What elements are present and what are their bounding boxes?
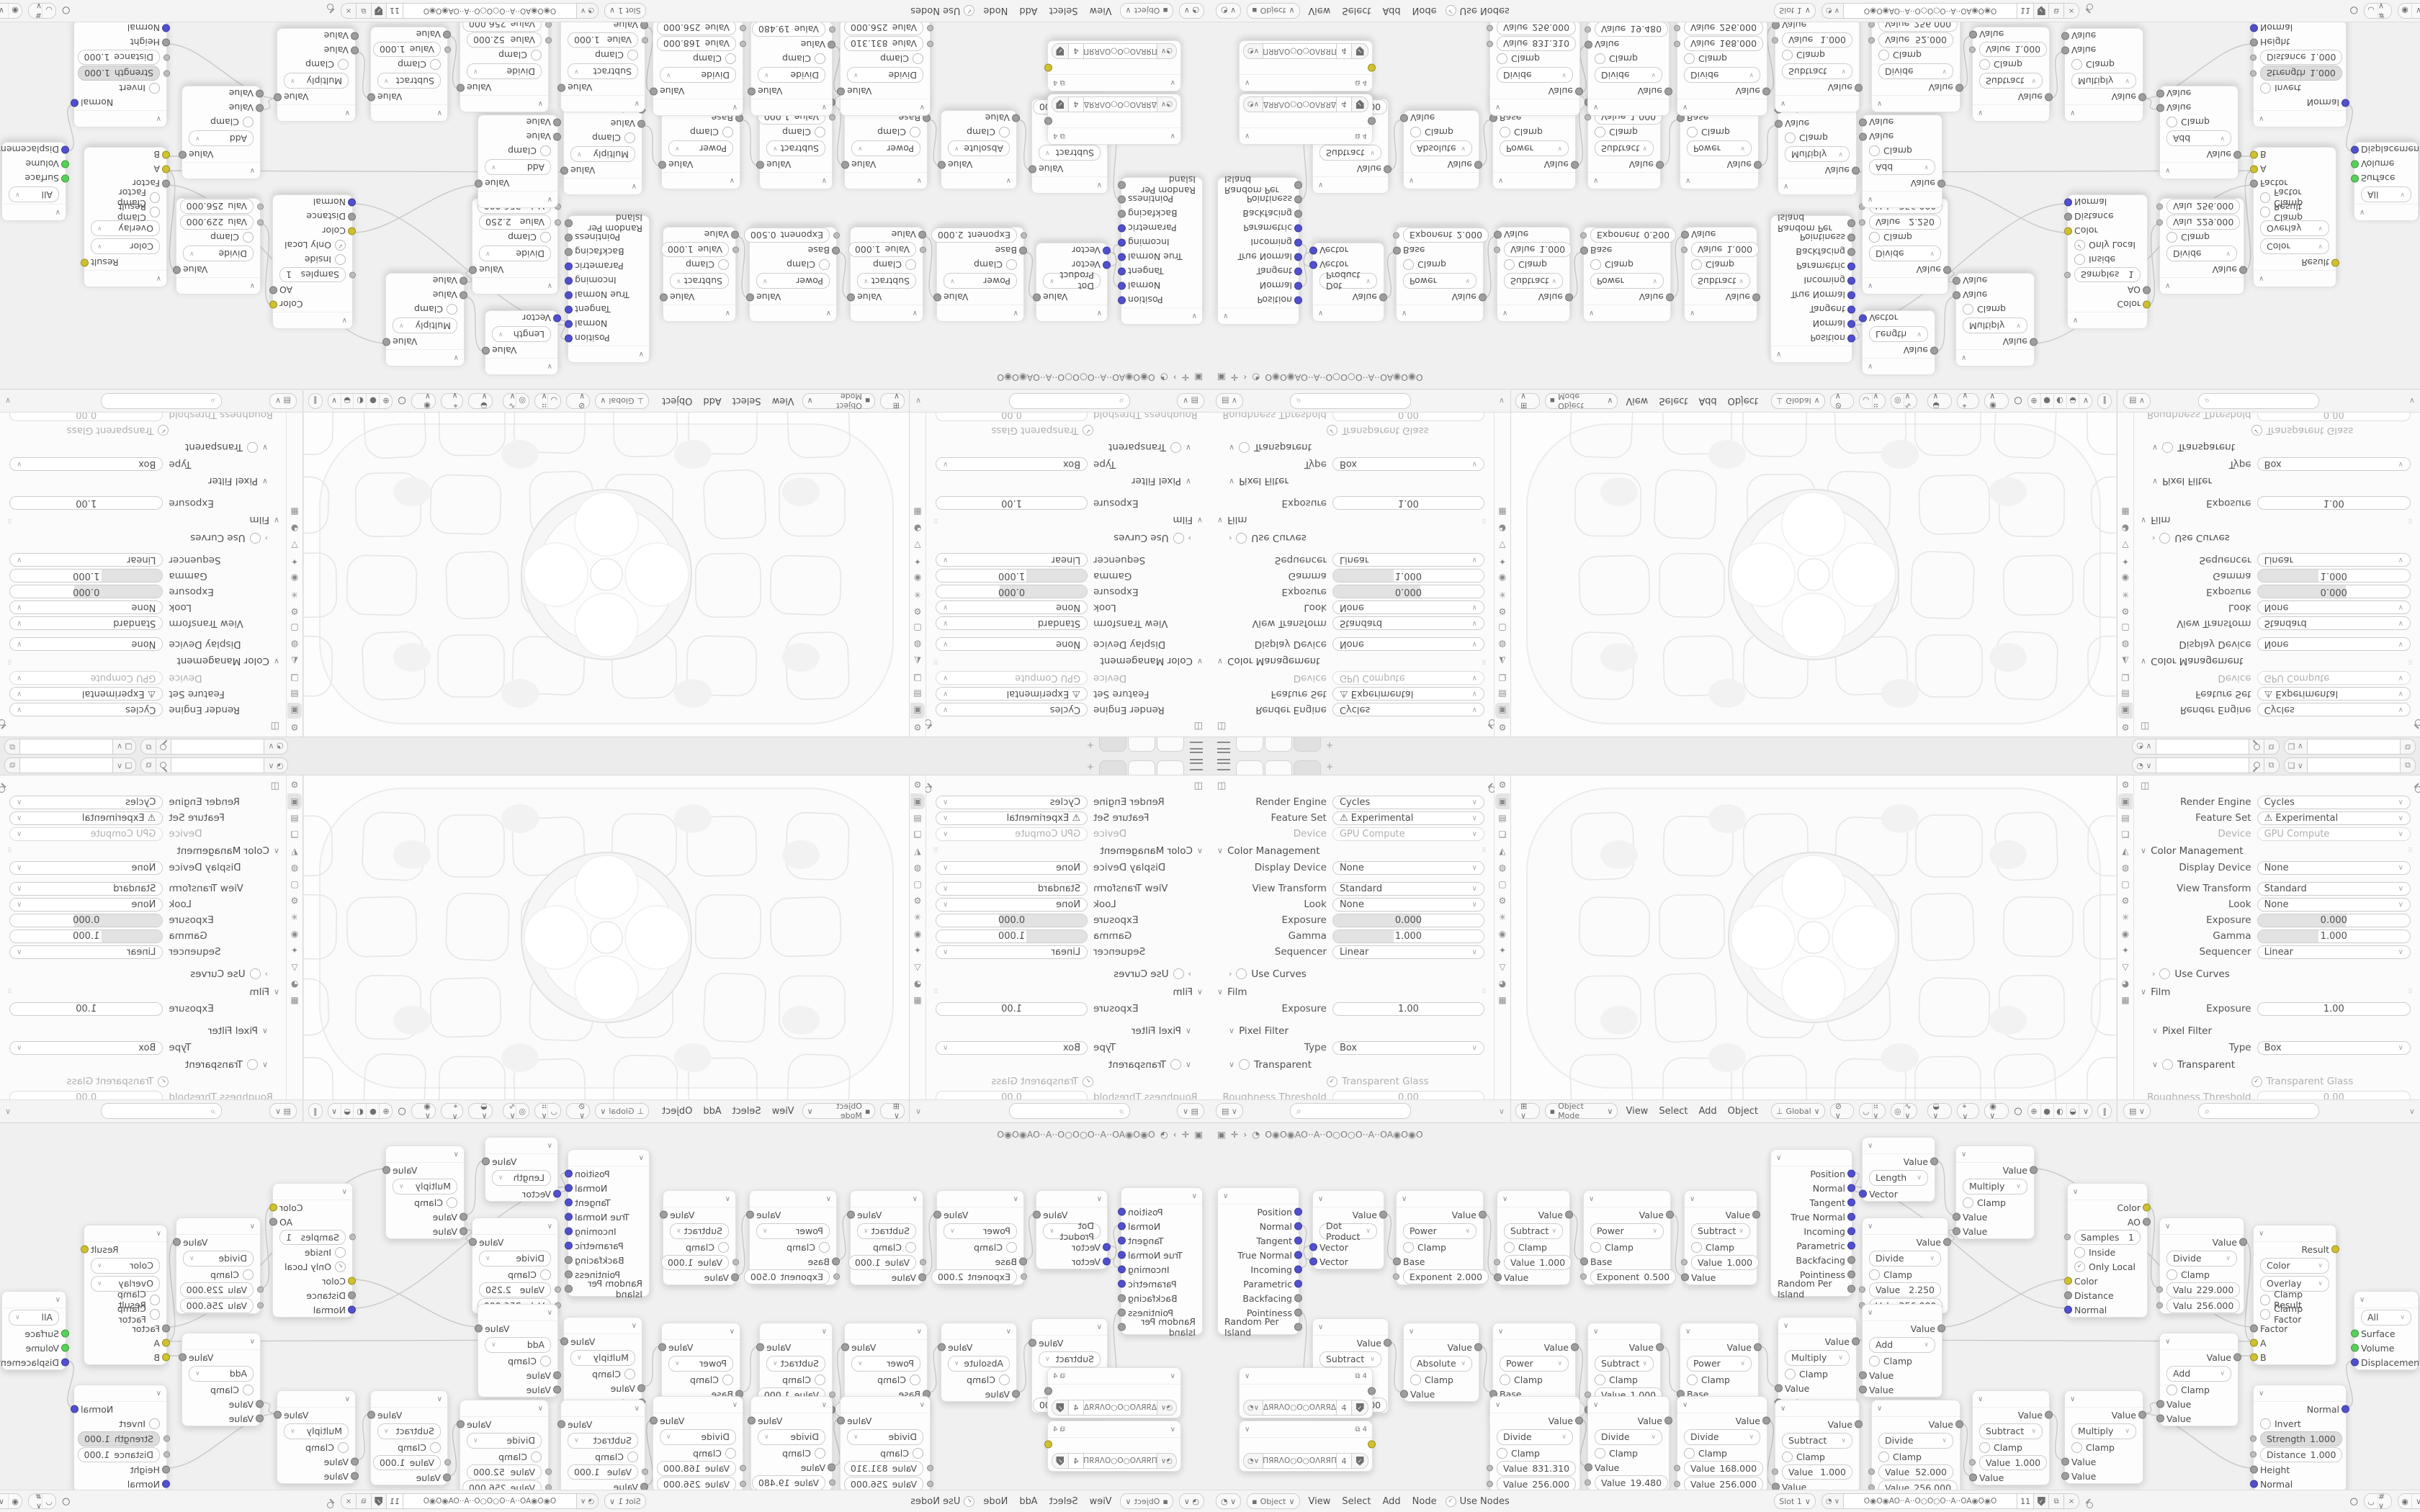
setting-widget[interactable]: 0.000 bbox=[2257, 585, 2411, 599]
node-checkbox-clamp[interactable]: Clamp bbox=[386, 1195, 464, 1210]
workspace-tab[interactable] bbox=[1157, 737, 1184, 752]
node[interactable]: ∨ValueDivide∨ClampValue2.250Valu256.000 bbox=[1862, 198, 1948, 294]
output-socket[interactable] bbox=[1575, 88, 1583, 96]
properties-tab-9-icon[interactable]: ◉ bbox=[287, 926, 302, 942]
input-socket[interactable] bbox=[61, 1344, 69, 1352]
field-socket[interactable] bbox=[920, 1259, 926, 1266]
node-header[interactable]: ∨ bbox=[277, 1391, 355, 1408]
field-socket[interactable] bbox=[257, 220, 264, 226]
input-socket[interactable] bbox=[1681, 231, 1689, 239]
slider[interactable]: 0.000 bbox=[9, 585, 163, 599]
properties-tab-4-icon[interactable]: ◭ bbox=[910, 843, 925, 859]
output-socket[interactable] bbox=[1847, 1199, 1855, 1207]
dropdown[interactable]: ⚠ Experimental∨ bbox=[2257, 811, 2411, 825]
checkbox-icon[interactable] bbox=[1684, 54, 1695, 65]
scene-selector-field[interactable] bbox=[2156, 739, 2249, 755]
setting-widget[interactable]: 1.00 bbox=[936, 1002, 1088, 1016]
dropdown[interactable]: Cycles∨ bbox=[1332, 796, 1484, 809]
material-users-count[interactable]: 11 bbox=[2017, 3, 2034, 19]
node-checkbox-clamp[interactable]: Clamp bbox=[1956, 1195, 2034, 1210]
unlink-material-button[interactable]: × bbox=[2064, 3, 2079, 19]
output-socket[interactable] bbox=[71, 1405, 79, 1413]
operation-dropdown[interactable]: Power∨ bbox=[851, 1356, 920, 1372]
node[interactable]: ∨ValueDivide∨ClampValue831.310Value256.0… bbox=[1489, 21, 1580, 116]
value-field[interactable]: Value256.000 bbox=[844, 1477, 923, 1492]
value-field[interactable]: Exponent2.000 bbox=[1403, 1269, 1489, 1284]
node[interactable]: ∨ValueDivide∨ClampValu229.000Valu256.000 bbox=[176, 198, 261, 294]
setting-widget[interactable]: Cycles∨ bbox=[2257, 796, 2411, 809]
viewport-editor-type-button[interactable]: ⊞ ∨ bbox=[1515, 393, 1540, 409]
value-field[interactable]: Value168.000 bbox=[657, 1461, 736, 1476]
value-field[interactable]: Distance1.000 bbox=[2260, 1447, 2342, 1462]
value-field[interactable]: Value168.000 bbox=[657, 37, 736, 52]
node-overlay-group[interactable]: ◉∨ bbox=[2398, 3, 2420, 19]
scene-selector-field[interactable] bbox=[171, 739, 264, 755]
field-socket[interactable] bbox=[1494, 1259, 1500, 1266]
input-socket[interactable] bbox=[61, 1359, 69, 1367]
checkbox-icon[interactable] bbox=[149, 84, 160, 94]
node[interactable]: ∨ValuePower∨ClampBaseExponent0.500 bbox=[749, 1190, 837, 1285]
setting-widget[interactable]: ⚠ Experimental∨ bbox=[936, 688, 1088, 701]
input-socket[interactable] bbox=[2064, 199, 2072, 207]
node-header[interactable]: ∨ bbox=[851, 305, 923, 321]
value-field[interactable]: Value256.000 bbox=[462, 21, 542, 32]
operation-dropdown[interactable]: Dot Product∨ bbox=[1319, 1223, 1377, 1239]
output-socket[interactable] bbox=[482, 347, 490, 355]
node-menu-add[interactable]: Add bbox=[1016, 6, 1040, 17]
node-checkbox-clamp[interactable]: Clamp bbox=[653, 52, 743, 66]
node-snap-group[interactable]: ◡# ∨ bbox=[2364, 1493, 2392, 1509]
output-socket[interactable] bbox=[1384, 166, 1391, 174]
properties-tab-8-icon[interactable]: ✳ bbox=[2118, 909, 2133, 925]
output-socket[interactable] bbox=[2239, 1238, 2247, 1246]
node-header[interactable]: ∨ bbox=[653, 99, 743, 115]
value-field[interactable]: Value1.000 bbox=[1782, 33, 1852, 48]
node[interactable]: ∨ValueLength∨Vector bbox=[1862, 310, 1935, 375]
setting-widget[interactable]: Linear∨ bbox=[9, 945, 163, 959]
value-field[interactable]: Valu256.000 bbox=[180, 199, 254, 215]
section-checkbox[interactable] bbox=[2159, 968, 2170, 979]
output-socket[interactable] bbox=[1754, 1344, 1762, 1351]
slider[interactable]: 1.000 bbox=[1332, 930, 1484, 943]
shader-type-dropdown[interactable]: ▪ Object ∨ bbox=[1247, 3, 1299, 19]
operation-dropdown[interactable]: Power∨ bbox=[668, 141, 733, 157]
section-transparent[interactable]: ∨Transparent bbox=[926, 438, 1210, 456]
collapse-chevron-icon[interactable]: ∨ bbox=[2409, 397, 2415, 406]
output-socket[interactable] bbox=[1028, 166, 1036, 174]
input-socket[interactable] bbox=[348, 1292, 356, 1300]
checkbox-icon[interactable] bbox=[815, 127, 825, 138]
material-id-widget[interactable]: ◔ ∨O◉O◉AO··A··O○O○O··A··OA◉O◉O11✓⧉× bbox=[341, 1494, 599, 1508]
field-socket[interactable] bbox=[1969, 1459, 1976, 1466]
checkbox-icon[interactable] bbox=[430, 60, 441, 71]
setting-widget[interactable]: ⚠ Experimental∨ bbox=[1332, 688, 1484, 701]
node-header[interactable]: ∨ bbox=[937, 1191, 1023, 1207]
node-header[interactable]: ∨ bbox=[1584, 1191, 1670, 1207]
setting-widget[interactable]: Standard∨ bbox=[1332, 882, 1484, 896]
field-socket[interactable] bbox=[2250, 71, 2257, 77]
copy-material-button[interactable]: ⧉ bbox=[356, 1493, 371, 1509]
workspace-tab[interactable] bbox=[1128, 737, 1155, 752]
section-pixel-filter[interactable]: ∨Pixel Filter bbox=[1210, 1022, 1494, 1040]
operation-dropdown[interactable]: Subtract∨ bbox=[857, 1223, 916, 1239]
node[interactable]: ∨ValueDivide∨ClampValue168.000Value256.0… bbox=[1677, 21, 1767, 116]
operation-dropdown[interactable]: Color∨ bbox=[2260, 1258, 2329, 1274]
fake-user-shield-button[interactable]: ✓ bbox=[1052, 1400, 1068, 1416]
properties-tab-0-icon[interactable]: ⚙ bbox=[910, 719, 925, 735]
node-header[interactable]: ∨ bbox=[1313, 305, 1384, 321]
checkbox-icon[interactable] bbox=[1590, 260, 1601, 271]
node-checkbox-clamp[interactable]: Clamp bbox=[750, 1240, 836, 1254]
node-checkbox-clamp[interactable]: Clamp bbox=[371, 1440, 447, 1454]
properties-tab-8-icon[interactable]: ✳ bbox=[1495, 909, 1510, 925]
checkbox-icon[interactable] bbox=[999, 1374, 1010, 1385]
copy-icon[interactable]: ⧉ bbox=[4, 739, 19, 755]
properties-tab-1-icon[interactable]: ▣ bbox=[1495, 793, 1510, 809]
output-socket[interactable] bbox=[2045, 1411, 2053, 1419]
node-header[interactable]: ∨ bbox=[273, 312, 352, 328]
operation-dropdown[interactable]: Multiply∨ bbox=[1963, 318, 2027, 334]
checkbox-icon[interactable] bbox=[815, 1448, 825, 1459]
node[interactable]: ∨PositionNormalTangentTrue NormalIncomin… bbox=[1121, 1187, 1203, 1335]
input-socket[interactable] bbox=[2061, 47, 2069, 55]
setting-widget[interactable]: ⚠ Experimental∨ bbox=[2257, 688, 2411, 701]
checkbox-icon[interactable] bbox=[819, 260, 830, 271]
node[interactable]: ∨ValueSubtract∨ClampValue1.000Value bbox=[850, 1190, 923, 1285]
node-header[interactable]: ∨ bbox=[478, 1305, 557, 1321]
setting-widget[interactable]: Box∨ bbox=[9, 458, 163, 472]
node[interactable]: ∨⧉ 4◔∨O2S◎ИNΔЯRΛO○O○OΛRЯΔNИ◎S2O4✓ bbox=[1047, 1367, 1181, 1418]
snap-target-button[interactable]: ⊘ ∨ bbox=[1830, 393, 1855, 409]
node[interactable]: ∨⧉ 4◔∨OƆƆWUΠЯRΛO○O○OΛRЯΠUWƆƆO4✓ bbox=[1047, 40, 1181, 91]
operation-dropdown[interactable]: Subtract∨ bbox=[1979, 1423, 2043, 1439]
node[interactable]: ∨ValueDivide∨ClampValue52.000Value256.00… bbox=[460, 21, 549, 112]
node-checkbox-clamp[interactable]: Clamp bbox=[561, 1449, 645, 1464]
output-socket[interactable] bbox=[1044, 1441, 1052, 1449]
node-checkbox-clamp[interactable]: Clamp bbox=[1397, 1240, 1483, 1254]
properties-search-input[interactable]: ⌕ bbox=[1009, 393, 1130, 409]
field-socket[interactable] bbox=[927, 1481, 933, 1488]
editor-type-button[interactable]: ▤ ∨ bbox=[1177, 1103, 1204, 1119]
operation-dropdown[interactable]: Dot Product∨ bbox=[1043, 274, 1101, 289]
input-socket[interactable] bbox=[2064, 228, 2072, 235]
node-header[interactable]: ∨ bbox=[2160, 1218, 2244, 1235]
section-use-curves[interactable]: ›Use Curves bbox=[0, 529, 287, 547]
input-socket[interactable] bbox=[162, 1480, 170, 1488]
main-menu-icon[interactable] bbox=[1217, 759, 1230, 770]
checkbox-icon[interactable] bbox=[2260, 1309, 2270, 1320]
input-socket[interactable] bbox=[61, 146, 69, 154]
input-socket[interactable] bbox=[828, 1464, 835, 1472]
node-checkbox-clamp[interactable]: Clamp bbox=[460, 48, 548, 63]
properties-tab-4-icon[interactable]: ◭ bbox=[287, 843, 302, 859]
properties-tab-10-icon[interactable]: ✦ bbox=[1495, 554, 1510, 570]
output-socket[interactable] bbox=[1664, 1417, 1672, 1425]
node-header[interactable]: ∨ bbox=[84, 270, 166, 287]
snap-target-button[interactable]: ⊘ ∨ bbox=[566, 393, 591, 409]
collapse-chevron-icon[interactable]: ∨ bbox=[1499, 397, 1505, 406]
node-header[interactable]: ∨ bbox=[1584, 305, 1670, 321]
setting-widget[interactable]: None∨ bbox=[9, 861, 163, 875]
input-socket[interactable] bbox=[1772, 22, 1780, 30]
dropdown[interactable]: ⚠ Experimental∨ bbox=[1332, 688, 1484, 701]
node-editor-type-button[interactable]: ◔ ∨ bbox=[1216, 1493, 1241, 1509]
setting-widget[interactable]: Box∨ bbox=[936, 1041, 1088, 1055]
slot-dropdown[interactable]: Slot 1 ∨ bbox=[604, 3, 646, 19]
workspace-tab[interactable] bbox=[1236, 737, 1263, 752]
setting-widget[interactable]: 0.000 bbox=[9, 585, 163, 599]
node-checkbox-clamp[interactable]: Clamp bbox=[478, 1354, 557, 1368]
output-socket[interactable] bbox=[1294, 181, 1302, 189]
node[interactable]: ∨ValuePower∨ClampBaseExponent2.000 bbox=[1396, 227, 1484, 322]
operation-dropdown[interactable]: Subtract∨ bbox=[1504, 274, 1563, 289]
slider-field[interactable]: Strength1.000 bbox=[2260, 1431, 2342, 1446]
node[interactable]: ∨ValueSubtract∨ClampValue1.000Value bbox=[1775, 21, 1860, 112]
node-header[interactable]: ∨⧉ 4 bbox=[1240, 1421, 1372, 1438]
properties-tab-11-icon[interactable]: ▽ bbox=[910, 959, 925, 975]
operation-dropdown[interactable]: Subtract∨ bbox=[670, 1223, 729, 1239]
setting-widget[interactable]: Linear∨ bbox=[2257, 945, 2411, 959]
datablock-icon[interactable]: ◔∨ bbox=[1157, 96, 1177, 112]
input-socket[interactable] bbox=[256, 104, 264, 112]
section-checkbox[interactable] bbox=[1170, 442, 1181, 453]
field-socket[interactable] bbox=[1681, 247, 1688, 253]
number-field[interactable]: 0.00 bbox=[9, 412, 163, 422]
properties-tab-12-icon[interactable]: ◕ bbox=[2118, 976, 2133, 991]
operation-dropdown[interactable]: Divide∨ bbox=[1595, 68, 1662, 84]
section-transparent[interactable]: ∨Transparent bbox=[2133, 1056, 2420, 1074]
scene-selector-icon[interactable]: ◔ ∨ bbox=[2132, 739, 2156, 755]
value-field[interactable]: Distance1.000 bbox=[2260, 50, 2342, 66]
output-socket[interactable] bbox=[1955, 1421, 1963, 1428]
node[interactable]: ∨ValueAdd∨ClampValueValue bbox=[2159, 1333, 2238, 1426]
dropdown[interactable]: Standard∨ bbox=[9, 617, 163, 631]
output-socket[interactable] bbox=[1930, 347, 1938, 355]
node-checkbox-clamp[interactable]: Clamp bbox=[1872, 48, 1960, 63]
section-pixel-filter[interactable]: ∨Pixel Filter bbox=[926, 472, 1210, 490]
number-field[interactable]: 0.00 bbox=[9, 1091, 163, 1101]
node-header[interactable]: ∨ bbox=[2254, 1225, 2336, 1242]
main-menu-icon[interactable] bbox=[1190, 742, 1203, 753]
slider[interactable]: 1.000 bbox=[936, 930, 1088, 943]
field-socket[interactable] bbox=[1021, 233, 1027, 239]
output-socket[interactable] bbox=[1847, 320, 1855, 328]
setting-widget[interactable]: Box∨ bbox=[9, 1041, 163, 1055]
field-socket[interactable] bbox=[920, 247, 926, 253]
node[interactable]: ∨All∨SurfaceVolumeDisplacement bbox=[1, 142, 66, 221]
node-checkbox-clamp-factor[interactable]: Clamp Factor bbox=[2254, 1307, 2336, 1321]
copy-material-button[interactable]: ⧉ bbox=[2049, 1493, 2064, 1509]
dropdown[interactable]: None∨ bbox=[936, 601, 1088, 615]
unlink-material-button[interactable]: × bbox=[2064, 1493, 2079, 1509]
checkbox-icon[interactable] bbox=[540, 1356, 551, 1367]
setting-widget[interactable]: Box∨ bbox=[2257, 1041, 2411, 1055]
output-socket[interactable] bbox=[748, 88, 756, 96]
node-checkbox-clamp[interactable]: Clamp bbox=[841, 52, 930, 66]
add-workspace-button[interactable]: + bbox=[1085, 762, 1096, 773]
value-field[interactable]: Value52.000 bbox=[467, 1464, 542, 1480]
node-header[interactable]: ∨ bbox=[1490, 1397, 1579, 1413]
node-header[interactable]: ∨ bbox=[760, 1323, 832, 1340]
setting-widget[interactable]: Cycles∨ bbox=[1332, 796, 1484, 809]
setting-widget[interactable]: Standard∨ bbox=[1332, 617, 1484, 631]
material-users-count[interactable]: 11 bbox=[386, 3, 403, 19]
use-nodes-toggle[interactable]: ✓Use Nodes bbox=[910, 1496, 974, 1507]
node-header[interactable]: ∨⧉ 4 bbox=[1240, 1368, 1372, 1385]
properties-tab-2-icon[interactable]: ▤ bbox=[1495, 686, 1510, 702]
output-socket[interactable] bbox=[1847, 1184, 1855, 1192]
value-field[interactable]: Valu256.000 bbox=[2166, 1298, 2240, 1313]
node[interactable]: ∨ValueMultiply∨ClampValueValue bbox=[1778, 1317, 1857, 1410]
operation-dropdown[interactable]: Subtract∨ bbox=[766, 1356, 825, 1372]
node[interactable]: ∨ValuePower∨ClampBaseExponent2.000 bbox=[1396, 1190, 1484, 1285]
field-socket[interactable] bbox=[444, 47, 451, 53]
operation-dropdown[interactable]: Subtract∨ bbox=[1595, 141, 1654, 157]
operation-dropdown[interactable]: Absolute∨ bbox=[1410, 1356, 1472, 1372]
output-socket[interactable] bbox=[1762, 88, 1770, 96]
properties-search-input[interactable]: ⌕ bbox=[2198, 1103, 2319, 1119]
input-socket[interactable] bbox=[2250, 180, 2258, 188]
properties-tab-13-icon[interactable]: ▦ bbox=[2118, 992, 2133, 1008]
properties-tab-12-icon[interactable]: ◕ bbox=[910, 976, 925, 991]
node[interactable]: ∨ValueDivide∨ClampValueValue19.480 bbox=[1587, 1396, 1670, 1491]
checkbox-icon[interactable] bbox=[2166, 233, 2177, 243]
input-socket[interactable] bbox=[1393, 1258, 1401, 1266]
setting-widget[interactable]: 1.00 bbox=[2257, 1002, 2411, 1016]
node[interactable]: ∨NormalInvertStrength1.000Distance1.000H… bbox=[2253, 21, 2347, 127]
slider-field[interactable]: Strength1.000 bbox=[78, 1431, 160, 1446]
output-socket[interactable] bbox=[179, 151, 187, 159]
operation-dropdown[interactable]: Add∨ bbox=[485, 1337, 551, 1353]
node[interactable]: ∨ValueAdd∨ClampValueValue bbox=[181, 1333, 261, 1426]
section-checkbox[interactable] bbox=[1236, 533, 1247, 544]
section-pixel-filter[interactable]: ∨Pixel Filter bbox=[2133, 472, 2420, 490]
output-socket[interactable] bbox=[650, 1417, 658, 1425]
output-socket[interactable] bbox=[933, 294, 941, 302]
node-header[interactable]: ∨ bbox=[941, 172, 1016, 189]
output-socket[interactable] bbox=[565, 292, 573, 300]
node-overlay-group[interactable]: ◉∨ bbox=[0, 3, 22, 19]
checkbox-icon[interactable] bbox=[1979, 1442, 1990, 1453]
copy-material-button[interactable]: ⧉ bbox=[2049, 3, 2064, 19]
copy-material-button[interactable]: ⧉ bbox=[356, 3, 371, 19]
node-checkbox-clamp[interactable]: Clamp bbox=[1956, 302, 2034, 317]
node[interactable]: ∨PositionNormalTangentTrue NormalIncomin… bbox=[1770, 1149, 1852, 1297]
operation-dropdown[interactable]: Divide∨ bbox=[758, 1429, 825, 1445]
field-socket[interactable] bbox=[829, 1480, 835, 1486]
proportional-edit-group[interactable]: ◎∿ ∨ bbox=[1891, 1103, 1917, 1119]
value-field[interactable]: Value52.000 bbox=[467, 33, 542, 48]
checkbox-icon[interactable] bbox=[149, 1418, 160, 1429]
dropdown[interactable]: Standard∨ bbox=[2257, 882, 2411, 896]
input-socket[interactable] bbox=[2156, 1400, 2164, 1408]
input-socket[interactable] bbox=[828, 41, 835, 49]
output-socket[interactable] bbox=[1847, 335, 1855, 343]
input-socket[interactable] bbox=[1400, 114, 1408, 122]
operation-dropdown[interactable]: Absolute∨ bbox=[948, 141, 1010, 157]
pin-icon[interactable] bbox=[156, 757, 171, 773]
input-socket[interactable] bbox=[2351, 161, 2359, 168]
output-socket[interactable] bbox=[1294, 196, 1302, 204]
mode-dropdown[interactable]: ▪ Object Mode ∨ bbox=[1545, 393, 1618, 409]
check-transparent-glass[interactable]: ✓Transparent Glass bbox=[926, 1074, 1210, 1089]
value-field[interactable]: Value1.000 bbox=[568, 33, 638, 48]
input-socket[interactable] bbox=[348, 1277, 356, 1285]
properties-tab-0-icon[interactable]: ⚙ bbox=[2118, 719, 2133, 735]
node-header[interactable]: ∨ bbox=[478, 191, 557, 207]
field-socket[interactable] bbox=[927, 25, 933, 32]
operation-dropdown[interactable]: Color∨ bbox=[91, 239, 160, 255]
node[interactable]: ∨ValueDivide∨ClampValue52.000Value256.00… bbox=[1871, 1400, 1960, 1491]
checkbox-icon[interactable]: ✓ bbox=[2074, 240, 2085, 251]
properties-tab-0-icon[interactable]: ⚙ bbox=[287, 719, 302, 735]
output-socket[interactable] bbox=[1852, 167, 1860, 175]
checkbox-icon[interactable] bbox=[243, 1269, 254, 1280]
slider-field[interactable]: Strength1.000 bbox=[2260, 66, 2342, 81]
editor-type-button[interactable]: ▤ ∨ bbox=[269, 393, 297, 409]
output-socket[interactable] bbox=[1033, 294, 1041, 302]
node-header[interactable]: ∨ bbox=[1313, 1319, 1388, 1336]
input-socket[interactable] bbox=[1859, 1372, 1867, 1380]
operation-dropdown[interactable]: Multiply∨ bbox=[393, 318, 457, 334]
value-field[interactable]: Value831.310 bbox=[1497, 1461, 1576, 1476]
viewport-editor-type-button[interactable]: ⊞ ∨ bbox=[880, 1103, 905, 1119]
viewport-menu-object[interactable]: Object bbox=[659, 1106, 695, 1117]
input-socket[interactable] bbox=[1859, 133, 1867, 141]
section-checkbox[interactable] bbox=[2162, 442, 2173, 453]
node[interactable]: ∨PositionNormalTangentTrue NormalIncomin… bbox=[568, 215, 650, 363]
node-checkbox-clamp[interactable]: Clamp bbox=[1497, 1240, 1569, 1254]
setting-widget[interactable]: 1.000 bbox=[936, 570, 1088, 583]
output-socket[interactable] bbox=[1955, 84, 1963, 92]
checkbox-icon[interactable] bbox=[150, 1309, 160, 1320]
node-checkbox-clamp[interactable]: Clamp bbox=[182, 1382, 260, 1397]
field-socket[interactable] bbox=[2064, 272, 2071, 279]
input-socket[interactable] bbox=[256, 1415, 264, 1423]
output-socket[interactable] bbox=[1033, 1211, 1041, 1219]
node-header[interactable]: ∨ bbox=[561, 95, 645, 112]
operation-dropdown[interactable]: All∨ bbox=[2361, 187, 2411, 203]
setting-widget[interactable]: 0.00 bbox=[1332, 412, 1484, 422]
node-header[interactable]: ∨ bbox=[1863, 1138, 1935, 1154]
datablock-selector[interactable]: ◔∨O2S◎ИNΔЯRΛO○O○OΛRЯΔNИ◎S2O4✓ bbox=[1048, 1398, 1180, 1418]
setting-widget[interactable]: Box∨ bbox=[1332, 1041, 1484, 1055]
node-checkbox-only-local[interactable]: ✓Only Local bbox=[273, 1259, 352, 1274]
node-header[interactable]: ∨ bbox=[662, 1323, 740, 1340]
setting-widget[interactable]: None∨ bbox=[9, 638, 163, 652]
node-checkbox-clamp[interactable]: Clamp bbox=[1497, 258, 1569, 272]
field-socket[interactable] bbox=[545, 37, 552, 44]
field-socket[interactable] bbox=[349, 272, 356, 279]
output-socket[interactable] bbox=[1847, 1242, 1855, 1250]
value-field[interactable]: Value1.000 bbox=[373, 1455, 441, 1470]
slider[interactable]: 0.000 bbox=[2257, 914, 2411, 927]
output-socket[interactable] bbox=[756, 161, 764, 169]
checkbox-icon[interactable]: ✓ bbox=[2251, 1076, 2262, 1087]
checkbox-icon[interactable] bbox=[725, 54, 736, 65]
properties-tab-9-icon[interactable]: ◉ bbox=[2118, 926, 2133, 942]
input-socket[interactable] bbox=[443, 1474, 451, 1482]
node-checkbox-clamp[interactable]: Clamp bbox=[277, 58, 355, 72]
input-socket[interactable] bbox=[2250, 24, 2258, 32]
section-use-curves[interactable]: ›Use Curves bbox=[2133, 529, 2420, 547]
input-socket[interactable] bbox=[1393, 247, 1401, 255]
node-checkbox-clamp[interactable]: Clamp bbox=[851, 258, 923, 272]
value-field[interactable]: Exponent0.500 bbox=[1590, 228, 1676, 243]
checkbox-icon[interactable] bbox=[335, 1247, 346, 1258]
output-socket[interactable] bbox=[1294, 253, 1302, 261]
properties-tab-9-icon[interactable]: ◉ bbox=[287, 570, 302, 586]
